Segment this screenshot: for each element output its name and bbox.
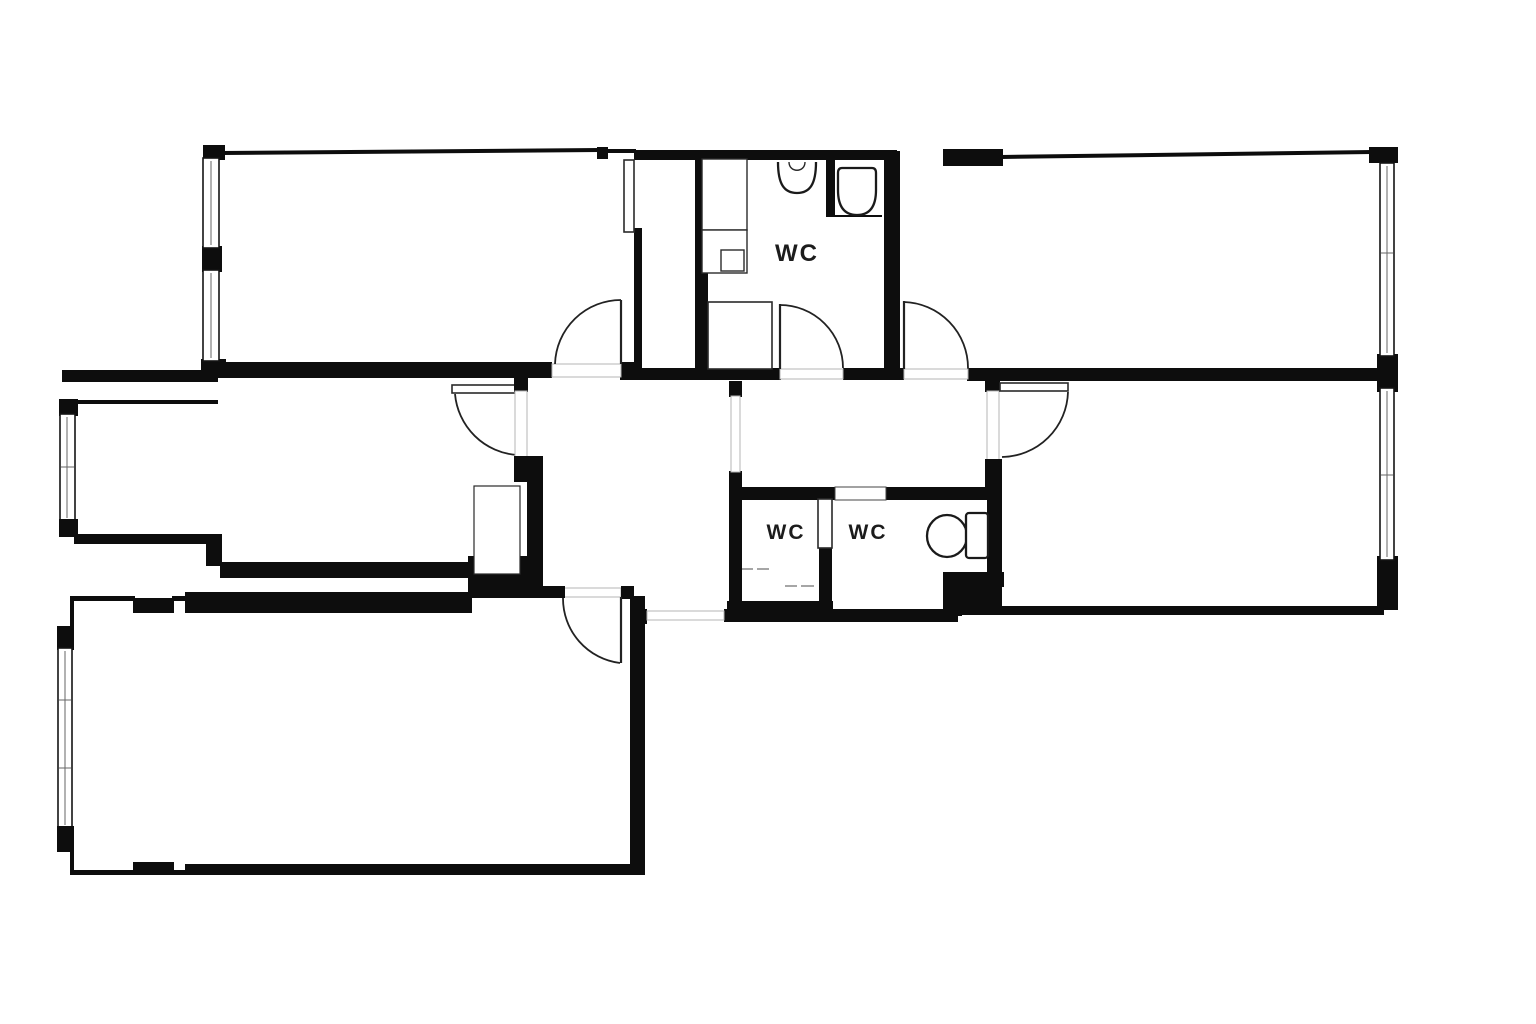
wall-notch bbox=[133, 598, 174, 613]
interior-wall bbox=[985, 377, 1000, 392]
door-swing-arc bbox=[1002, 392, 1068, 457]
toilet-icon bbox=[838, 168, 876, 215]
doorway-threshold bbox=[563, 588, 621, 597]
doorway-threshold bbox=[904, 369, 968, 379]
exterior-wall bbox=[70, 870, 135, 875]
doorway-threshold bbox=[552, 364, 621, 377]
interior-wall bbox=[884, 151, 900, 380]
interior-wall bbox=[185, 592, 472, 613]
interior-wall bbox=[634, 228, 642, 370]
door-swing-arc bbox=[904, 302, 968, 368]
exterior-wall bbox=[172, 870, 186, 875]
room-wc-small-left: WC bbox=[727, 499, 833, 615]
interior-wall bbox=[985, 459, 1002, 490]
interior-wall bbox=[630, 596, 645, 875]
room-wc-small-right: WC bbox=[835, 459, 1004, 616]
room-middle-left bbox=[59, 370, 543, 598]
doorway-threshold bbox=[987, 391, 999, 460]
interior-wall bbox=[819, 547, 832, 603]
exterior-wall bbox=[75, 400, 218, 404]
door-swing-arc bbox=[455, 394, 517, 455]
room-wc-main: WC bbox=[702, 151, 904, 380]
wall-pier bbox=[202, 246, 222, 272]
toilet-bowl-icon bbox=[927, 515, 967, 557]
door-swing-arc bbox=[555, 300, 621, 364]
door-leaf bbox=[1000, 383, 1068, 391]
interior-wall bbox=[514, 377, 528, 392]
doorway-threshold bbox=[515, 391, 527, 457]
sink-bowl-icon bbox=[789, 162, 805, 170]
room-label-wc-left: WC bbox=[767, 521, 806, 544]
room-top-right bbox=[943, 147, 1398, 392]
wall-step bbox=[206, 534, 222, 566]
entrance bbox=[630, 609, 958, 624]
exterior-wall bbox=[70, 596, 135, 601]
cabinet-icon bbox=[702, 159, 747, 230]
floor-plan-page: WC WC WC bbox=[0, 0, 1536, 1024]
interior-wall bbox=[885, 487, 1002, 500]
interior-wall bbox=[220, 562, 473, 578]
closed-door bbox=[835, 487, 886, 500]
doorway-threshold bbox=[731, 396, 740, 472]
room-label-wc-main: WC bbox=[775, 240, 819, 267]
interior-wall bbox=[514, 456, 543, 482]
exterior-wall bbox=[62, 370, 218, 382]
shower-tray-icon bbox=[708, 302, 772, 369]
wall-corner bbox=[1369, 147, 1398, 163]
door-swing-arc bbox=[780, 305, 843, 368]
wall-pier bbox=[57, 626, 74, 650]
interior-wall bbox=[724, 609, 958, 622]
wall-notch bbox=[133, 862, 174, 875]
interior-wall bbox=[843, 368, 904, 380]
entrance-door-threshold bbox=[647, 611, 724, 620]
interior-wall bbox=[218, 362, 552, 378]
room-label-wc-right: WC bbox=[849, 521, 888, 544]
exterior-wall bbox=[1001, 152, 1372, 157]
toilet-partition-wall bbox=[826, 154, 835, 217]
interior-wall bbox=[470, 586, 565, 598]
interior-wall bbox=[729, 487, 835, 500]
interior-wall bbox=[527, 480, 543, 598]
toilet-tank-icon bbox=[966, 513, 988, 558]
wall-notch bbox=[943, 149, 1003, 166]
interior-wall bbox=[620, 368, 710, 380]
interior-wall bbox=[967, 368, 1382, 381]
room-bottom-left bbox=[57, 586, 645, 875]
wardrobe-icon bbox=[474, 486, 520, 574]
wc-door-leaf bbox=[818, 499, 832, 548]
door-leaf bbox=[452, 385, 523, 393]
doorway-threshold bbox=[780, 369, 843, 379]
basin-icon bbox=[721, 250, 744, 271]
exterior-wall bbox=[222, 150, 600, 153]
exterior-wall bbox=[956, 606, 1384, 615]
room-top-left bbox=[201, 145, 636, 378]
wall-pier bbox=[1377, 556, 1398, 610]
door-swing-arc bbox=[563, 598, 620, 663]
room-right-middle bbox=[956, 377, 1398, 615]
exterior-wall bbox=[185, 864, 644, 875]
exterior-wall bbox=[74, 534, 220, 544]
floor-plan-drawing: WC WC WC bbox=[0, 0, 1536, 1024]
shower-dash-marks bbox=[742, 569, 814, 586]
interior-wall bbox=[729, 381, 742, 397]
exterior-wall bbox=[634, 150, 897, 160]
closet-door-leaf bbox=[624, 160, 634, 232]
